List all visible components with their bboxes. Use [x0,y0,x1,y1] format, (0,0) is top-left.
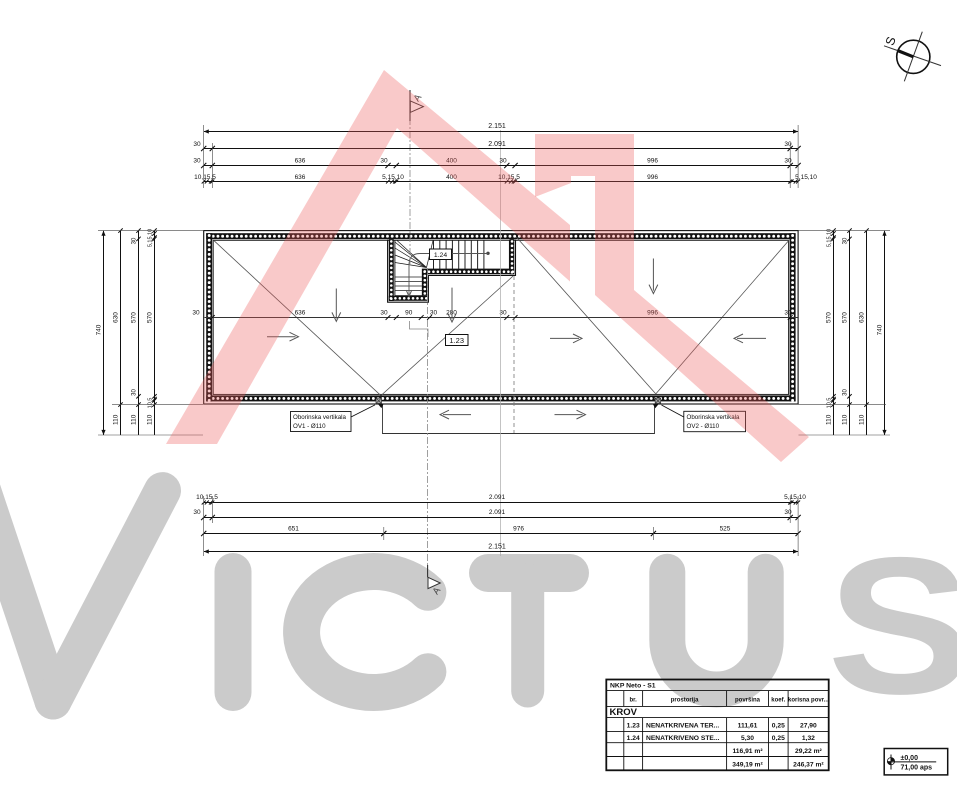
svg-text:996: 996 [647,174,658,181]
svg-text:976: 976 [513,526,524,533]
svg-text:740: 740 [95,324,102,335]
svg-text:29,22 m²: 29,22 m² [795,748,823,755]
svg-text:110: 110 [841,414,848,425]
svg-text:2.091: 2.091 [489,494,506,501]
svg-text:30: 30 [499,158,507,165]
svg-text:2.151: 2.151 [488,123,506,130]
svg-text:525: 525 [720,526,731,533]
svg-text:prostorija: prostorija [671,698,699,704]
svg-text:116,91 m²: 116,91 m² [732,748,763,755]
svg-text:OV2 - Ø110: OV2 - Ø110 [687,423,720,430]
svg-text:110: 110 [146,414,153,425]
svg-text:NENATKRIVENO STE...: NENATKRIVENO STE... [646,735,720,742]
svg-text:110: 110 [112,414,119,425]
svg-text:630: 630 [858,312,865,323]
svg-text:površina: površina [735,698,761,704]
svg-text:30: 30 [193,509,201,516]
svg-text:30: 30 [784,310,792,317]
svg-text:570: 570 [130,312,137,323]
svg-text:30: 30 [380,310,388,317]
svg-text:30: 30 [430,310,438,317]
svg-text:30: 30 [193,141,201,148]
svg-text:2.151: 2.151 [488,544,506,551]
svg-text:349,19 m²: 349,19 m² [732,762,763,769]
svg-text:OV1 - Ø110: OV1 - Ø110 [293,423,326,430]
svg-text:5,15,10: 5,15,10 [826,229,832,247]
svg-text:1.23: 1.23 [449,336,464,345]
svg-text:996: 996 [647,158,658,165]
svg-text:NENATKRIVENA TER...: NENATKRIVENA TER... [646,723,719,730]
svg-text:30: 30 [784,509,792,516]
svg-text:5,15,10: 5,15,10 [147,229,153,247]
svg-text:30: 30 [131,237,137,244]
svg-text:27,90: 27,90 [800,723,817,730]
svg-text:5,15,10: 5,15,10 [795,174,817,181]
svg-text:koef.: koef. [771,698,785,704]
svg-text:S: S [827,517,957,735]
svg-text:30: 30 [842,389,848,396]
svg-text:10,5: 10,5 [826,398,832,409]
svg-text:30: 30 [131,389,137,396]
svg-text:30: 30 [193,158,201,165]
svg-text:±0,00: ±0,00 [901,755,919,762]
svg-text:636: 636 [295,310,306,317]
svg-text:30: 30 [192,310,200,317]
svg-text:30: 30 [784,158,792,165]
svg-text:636: 636 [295,158,306,165]
svg-text:0,25: 0,25 [772,735,785,742]
svg-text:30: 30 [842,237,848,244]
svg-text:111,61: 111,61 [738,723,758,730]
svg-text:110: 110 [858,414,865,425]
svg-text:5,15,10: 5,15,10 [784,494,806,501]
svg-text:10,15,5: 10,15,5 [196,494,218,501]
svg-text:110: 110 [130,414,137,425]
svg-text:570: 570 [825,312,832,323]
svg-text:636: 636 [295,174,306,181]
svg-text:30: 30 [380,158,388,165]
svg-text:570: 570 [146,312,153,323]
svg-text:2.091: 2.091 [489,509,506,516]
svg-text:1.24: 1.24 [627,735,640,742]
svg-text:110: 110 [825,414,832,425]
svg-text:630: 630 [112,312,119,323]
svg-text:5,30: 5,30 [741,735,754,742]
svg-text:570: 570 [841,312,848,323]
svg-text:NKP Neto - S1: NKP Neto - S1 [610,683,656,690]
svg-text:1,32: 1,32 [802,735,815,742]
svg-text:0,25: 0,25 [772,723,785,730]
svg-text:1.23: 1.23 [627,723,640,730]
svg-text:1.24: 1.24 [434,252,447,259]
svg-text:2.091: 2.091 [488,141,506,148]
svg-text:KROV: KROV [610,707,638,718]
svg-text:90: 90 [405,310,413,317]
svg-text:10,5: 10,5 [147,398,153,409]
svg-text:30: 30 [784,141,792,148]
svg-text:71,00 aps: 71,00 aps [901,764,933,771]
svg-text:740: 740 [876,324,883,335]
svg-text:korisna povr...: korisna povr... [788,698,829,704]
svg-text:5,15,10: 5,15,10 [382,174,404,181]
svg-text:651: 651 [288,526,299,533]
svg-text:Oborinska vertikala: Oborinska vertikala [293,414,347,421]
svg-text:246,37 m²: 246,37 m² [793,762,824,769]
svg-text:10,15,5: 10,15,5 [194,174,216,181]
svg-text:br.: br. [630,698,638,704]
